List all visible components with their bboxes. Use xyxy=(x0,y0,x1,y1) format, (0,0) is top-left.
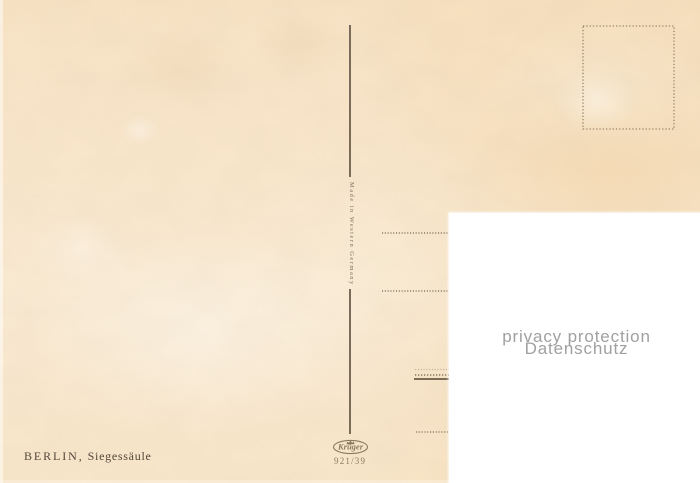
svg-text:Krüger: Krüger xyxy=(337,442,364,452)
